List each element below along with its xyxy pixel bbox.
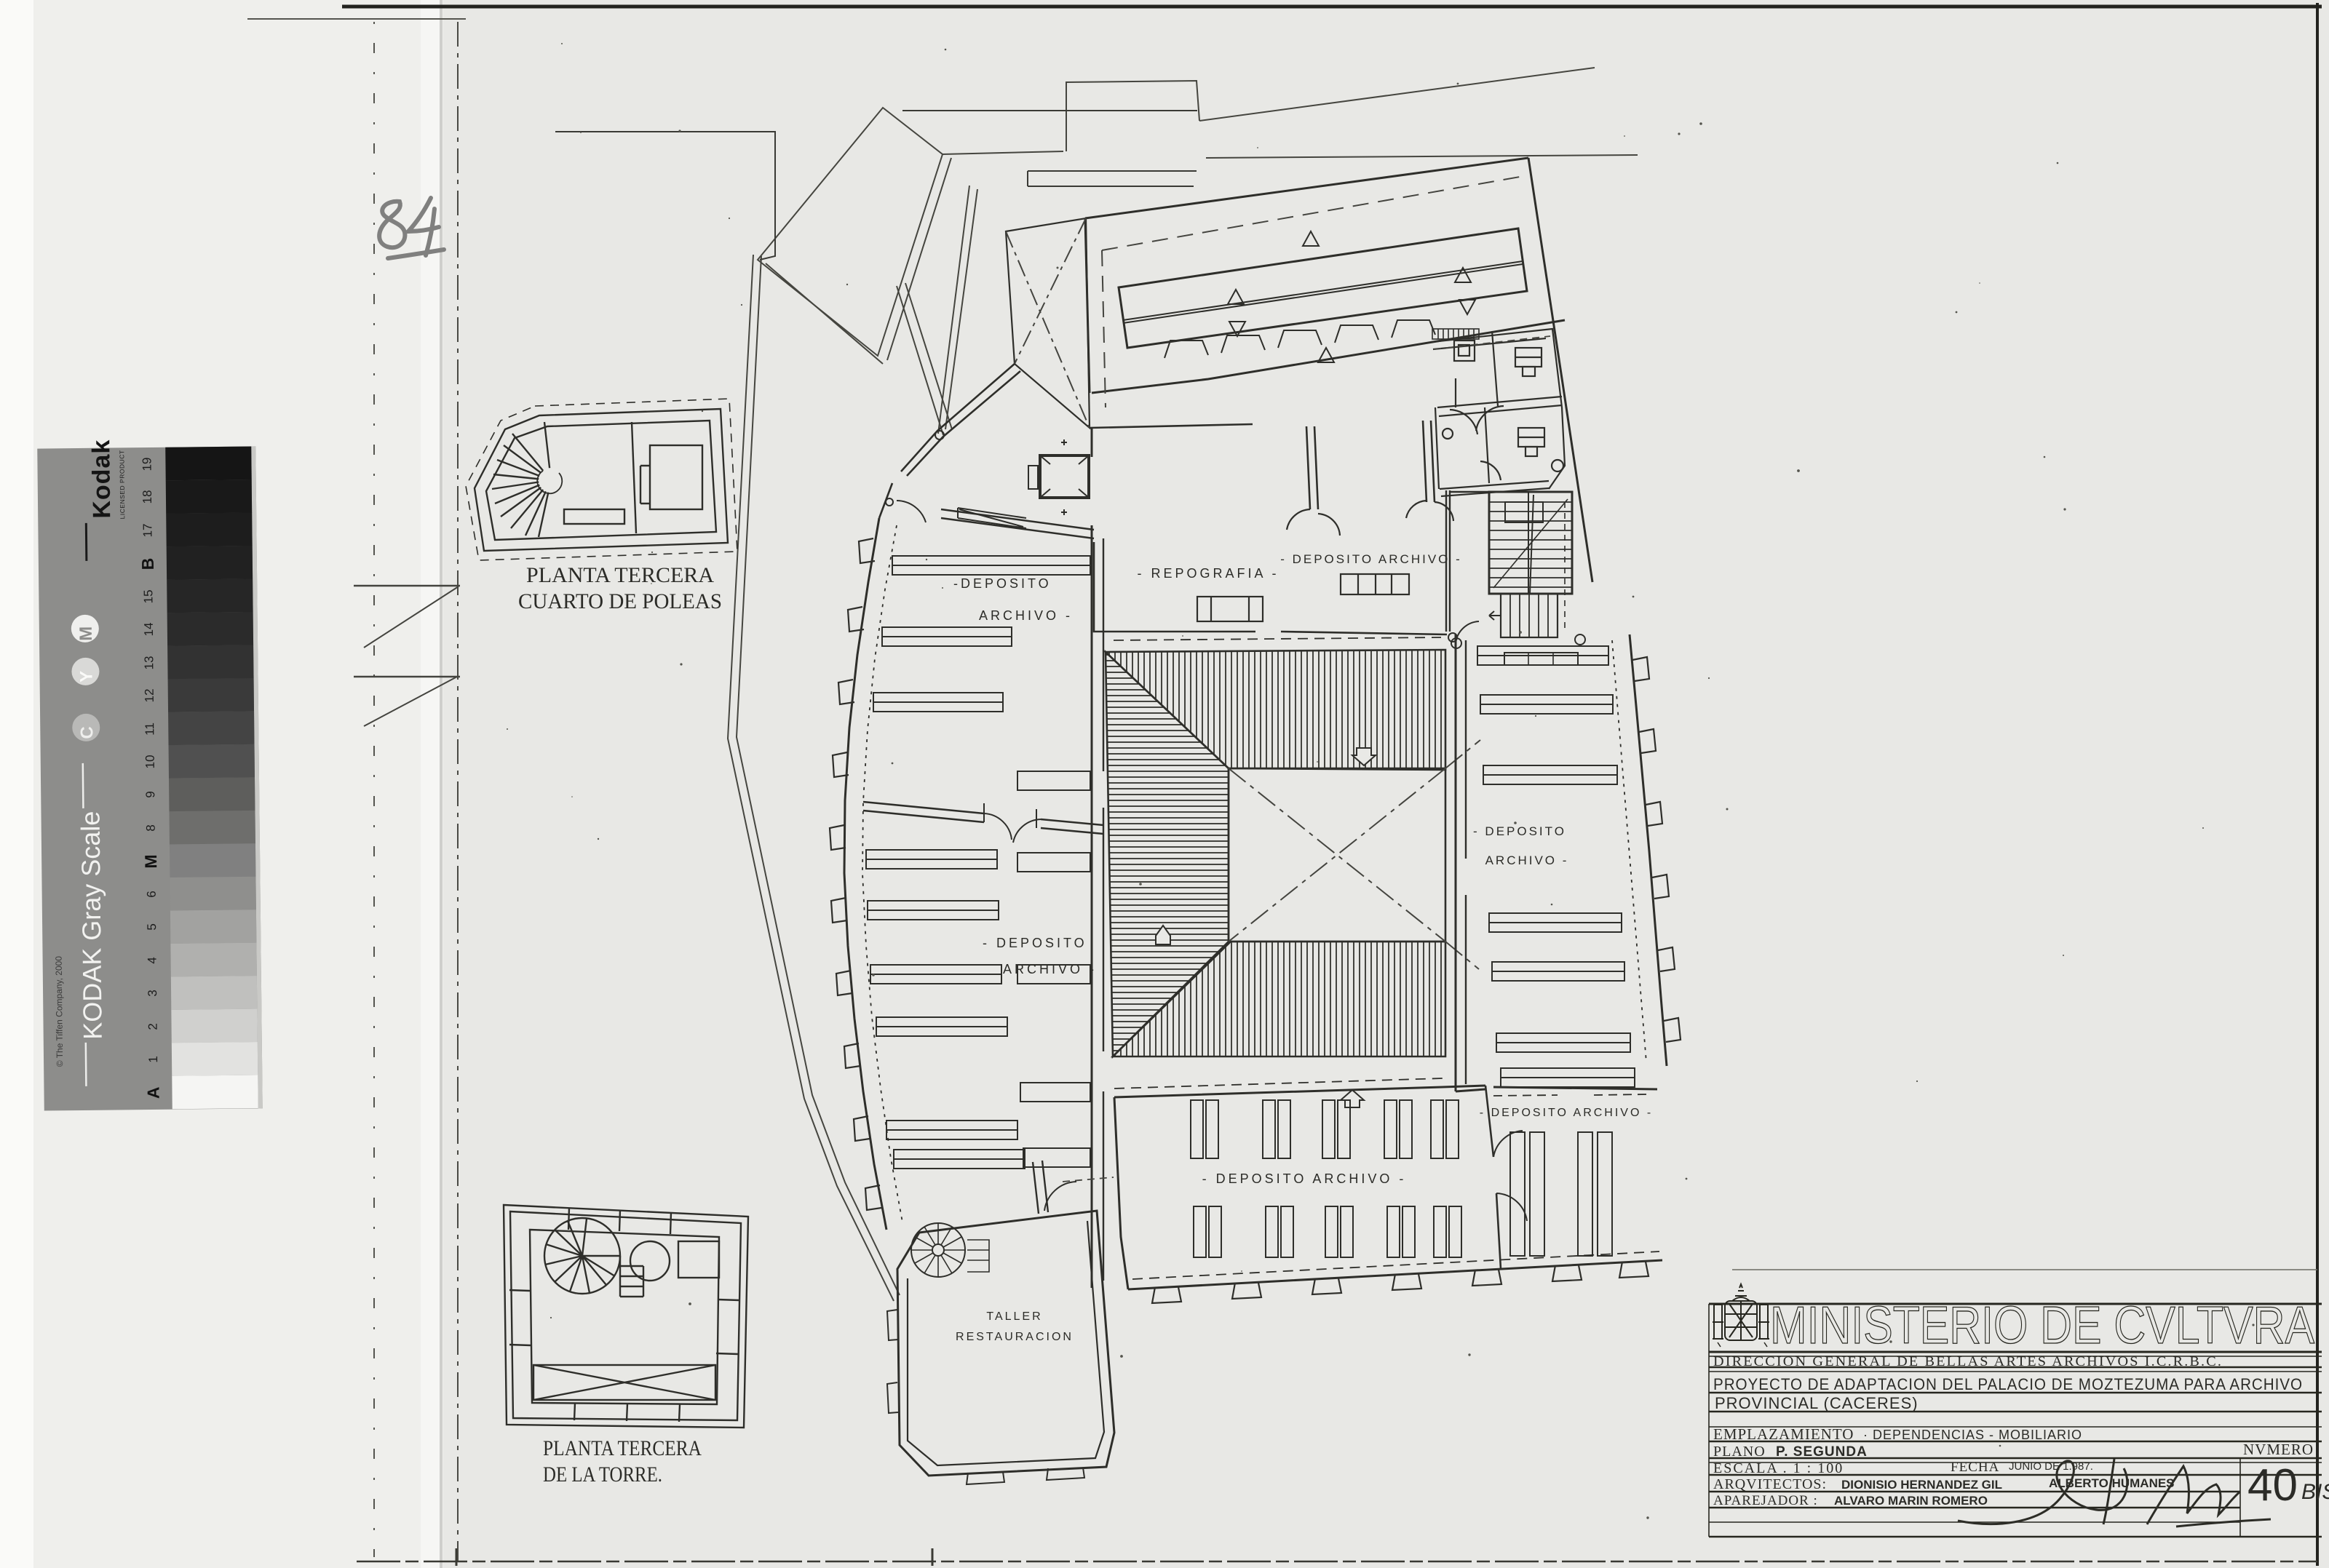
svg-text:MINISTERIO DE CVLTVRA: MINISTERIO DE CVLTVRA: [1770, 1297, 2314, 1355]
svg-text:4: 4: [146, 957, 159, 964]
svg-text:8: 8: [144, 824, 158, 832]
svg-text:2: 2: [146, 1023, 160, 1030]
svg-text:PROYECTO DE ADAPTACION DEL PAL: PROYECTO DE ADAPTACION DEL PALACIO DE MO…: [1713, 1375, 2303, 1393]
svg-text:A: A: [143, 1087, 162, 1099]
svg-text:19: 19: [140, 457, 154, 471]
svg-text:- DEPOSITO: - DEPOSITO: [983, 936, 1087, 950]
svg-text:ARCHIVO -: ARCHIVO -: [979, 608, 1073, 623]
svg-text:TALLER: TALLER: [986, 1310, 1042, 1323]
svg-text:PROVINCIAL (CACERES): PROVINCIAL (CACERES): [1715, 1394, 1919, 1412]
svg-text:JUNIO DE 1.987.: JUNIO DE 1.987.: [2009, 1460, 2093, 1473]
svg-text:- DEPOSITO ARCHIVO -: - DEPOSITO ARCHIVO -: [1480, 1107, 1653, 1119]
svg-text:- DEPOSITO ARCHIVO -: - DEPOSITO ARCHIVO -: [1202, 1171, 1407, 1186]
svg-text:RESTAURACION: RESTAURACION: [956, 1331, 1074, 1343]
svg-text:DIRECCION GENERAL DE BELLAS: DIRECCION GENERAL DE BELLAS ARTES ARCHIV…: [1713, 1354, 2223, 1369]
svg-text:9: 9: [143, 791, 157, 798]
svg-text:© The Tiffen Company, 2000: © The Tiffen Company, 2000: [54, 956, 66, 1067]
svg-text:APAREJADOR :: APAREJADOR :: [1713, 1493, 1818, 1508]
svg-text:Kodak: Kodak: [87, 439, 116, 519]
svg-text:12: 12: [143, 688, 156, 702]
svg-text:FECHA: FECHA: [1951, 1460, 1999, 1475]
svg-text:6: 6: [145, 891, 159, 898]
svg-text:B: B: [138, 558, 157, 570]
svg-text:DE LA TORRE.: DE LA TORRE.: [543, 1462, 662, 1487]
svg-text:-DEPOSITO: -DEPOSITO: [953, 576, 1052, 591]
svg-text:C: C: [77, 726, 97, 739]
svg-text:ARQVITECTOS:: ARQVITECTOS:: [1713, 1476, 1827, 1492]
svg-text:PLANO: PLANO: [1713, 1444, 1766, 1460]
svg-text:15: 15: [141, 589, 155, 603]
svg-text:PLANTA TERCERA: PLANTA TERCERA: [526, 563, 714, 587]
svg-text:14: 14: [142, 622, 156, 636]
svg-text:EMPLAZAMIENTO: EMPLAZAMIENTO: [1713, 1425, 1854, 1443]
svg-text:CUARTO DE POLEAS: CUARTO DE POLEAS: [518, 589, 722, 613]
svg-text:5: 5: [145, 923, 159, 931]
svg-text:LICENSED PRODUCT: LICENSED PRODUCT: [118, 450, 126, 519]
svg-text:P. SEGUNDA: P. SEGUNDA: [1776, 1444, 1868, 1460]
svg-text:ALVARO MARIN ROMERO: ALVARO MARIN ROMERO: [1834, 1494, 1988, 1508]
svg-text:18: 18: [140, 490, 154, 504]
svg-text:ESCALA . 1 : 100: ESCALA . 1 : 100: [1713, 1460, 1844, 1476]
svg-text:PLANTA TERCERA: PLANTA TERCERA: [543, 1436, 702, 1460]
svg-text:ARCHIVO -: ARCHIVO -: [1485, 853, 1569, 867]
svg-text:40: 40: [2247, 1460, 2298, 1511]
svg-text:- REPOGRAFIA -: - REPOGRAFIA -: [1137, 566, 1279, 581]
svg-text:17: 17: [140, 523, 154, 537]
svg-text:NVMERO: NVMERO: [2243, 1441, 2314, 1458]
svg-text:11: 11: [143, 723, 156, 736]
svg-text:M: M: [76, 626, 96, 641]
svg-text:· DEPENDENCIAS - MOBILIARIO: · DEPENDENCIAS - MOBILIARIO: [1863, 1428, 2082, 1442]
svg-text:DIONISIO HERNANDEZ GIL: DIONISIO HERNANDEZ GIL: [1841, 1478, 2002, 1492]
svg-text:10: 10: [143, 755, 157, 768]
svg-text:- DEPOSITO: - DEPOSITO: [1473, 824, 1566, 838]
svg-text:13: 13: [142, 656, 156, 669]
svg-text:- DEPOSITO ARCHIVO -: - DEPOSITO ARCHIVO -: [1280, 552, 1462, 566]
svg-text:KODAK Gray Scale: KODAK Gray Scale: [75, 811, 107, 1040]
svg-text:1: 1: [146, 1056, 160, 1063]
svg-text:BIS: BIS: [2301, 1480, 2329, 1504]
svg-text:3: 3: [146, 990, 159, 997]
svg-text:M: M: [141, 854, 160, 868]
svg-text:Y: Y: [76, 671, 96, 682]
